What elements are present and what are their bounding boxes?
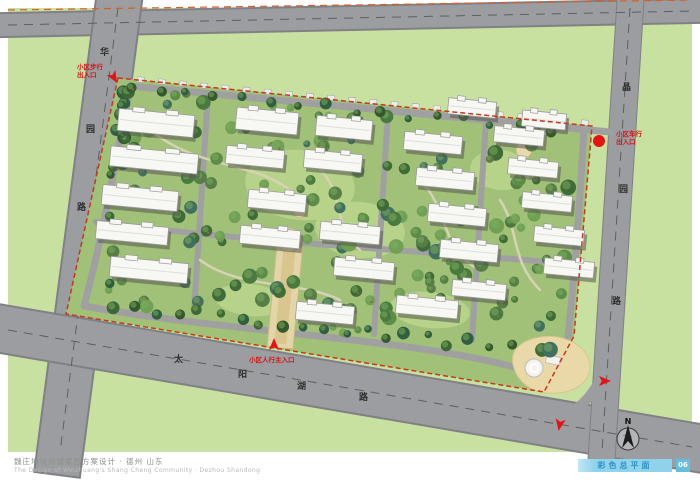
road-name-char-south: 太 bbox=[174, 356, 183, 365]
entrance-label-south-main: 小区人行主入口 bbox=[249, 357, 295, 365]
entrance-label-west-pedestrian: 小区步行 出入口 bbox=[77, 64, 103, 80]
plan-sheet: N 小区步行 出入口小区车行 出入口小区人行主入口华园路太阳湖路晶园路 魏庄地块… bbox=[0, 0, 700, 495]
entrance-label-east-vehicle: 小区车行 出入口 bbox=[616, 131, 642, 147]
project-title-cn: 魏庄地块尚城家园方案设计 · 德州 山东 bbox=[14, 456, 164, 467]
road-name-char-south: 湖 bbox=[297, 383, 306, 392]
project-title-en: The Design of Weizhuang's Shang Cheng Co… bbox=[14, 467, 260, 474]
label-layer: 小区步行 出入口小区车行 出入口小区人行主入口华园路太阳湖路晶园路 bbox=[0, 0, 700, 495]
road-name-char-east: 晶 bbox=[622, 84, 631, 93]
road-name-char-east: 园 bbox=[619, 186, 628, 195]
road-name-char-east: 路 bbox=[612, 298, 621, 307]
sheet-title-bar: 彩色总平面 bbox=[578, 459, 672, 472]
road-name-char-west: 路 bbox=[77, 204, 86, 213]
road-name-char-south: 路 bbox=[359, 394, 368, 403]
road-name-char-south: 阳 bbox=[238, 371, 247, 380]
road-name-char-west: 园 bbox=[86, 126, 95, 135]
road-name-char-west: 华 bbox=[100, 49, 109, 58]
sheet-number-badge: 06 bbox=[676, 459, 690, 472]
